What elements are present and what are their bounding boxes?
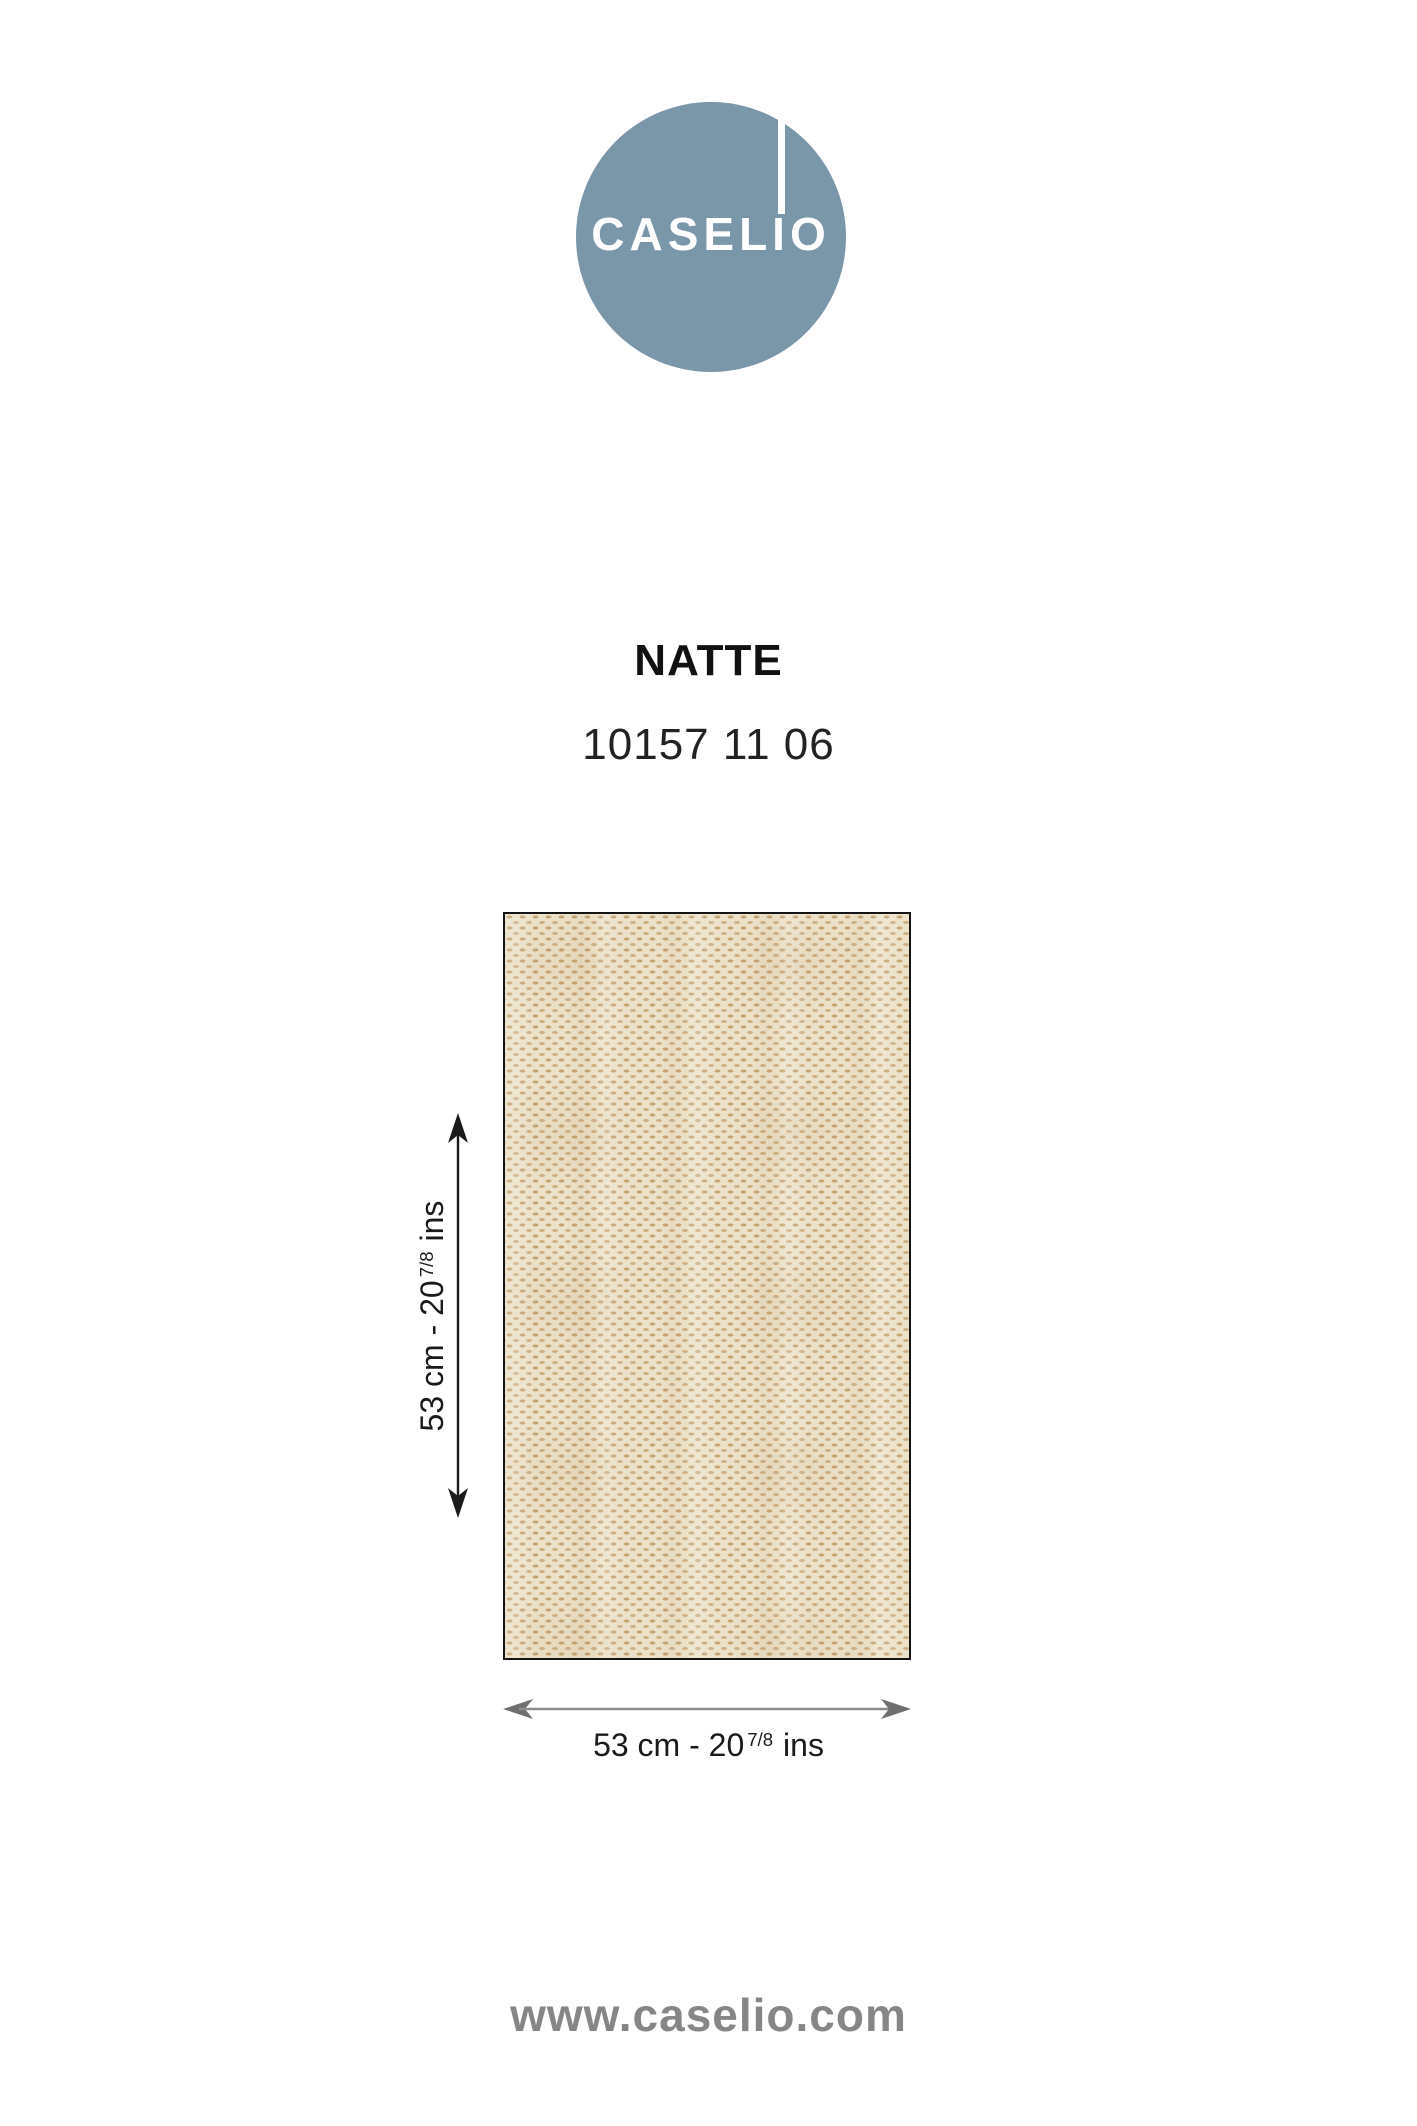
product-spec-sheet: CASELIO NATTE 10157 11 06 53 cm - 207/8i… xyxy=(0,0,1417,2126)
caselio-logo: CASELIO xyxy=(576,102,846,372)
wallpaper-swatch xyxy=(503,912,911,1660)
logo-letter-i: I xyxy=(772,211,790,257)
height-fraction: 7/8 xyxy=(416,1251,437,1277)
height-dimension-label: 53 cm - 207/8ins xyxy=(410,1114,444,1518)
width-unit: ins xyxy=(783,1727,824,1763)
logo-text-left: CASEL xyxy=(591,211,772,257)
product-name: NATTE xyxy=(0,639,1417,683)
website-url: www.caselio.com xyxy=(0,1992,1417,2038)
height-value: 53 cm - 20 xyxy=(414,1280,450,1431)
width-dimension-arrow xyxy=(503,1696,911,1722)
height-unit: ins xyxy=(414,1201,450,1242)
logo-letter-i-glyph: I xyxy=(772,208,790,260)
width-value: 53 cm - 20 xyxy=(593,1727,744,1763)
width-fraction: 7/8 xyxy=(747,1729,773,1750)
logo-wordmark: CASELIO xyxy=(576,211,846,257)
product-reference: 10157 11 06 xyxy=(0,723,1417,767)
logo-i-accent-bar xyxy=(778,102,785,214)
logo-text-right: O xyxy=(790,211,831,257)
width-dimension-label: 53 cm - 207/8ins xyxy=(0,1729,1417,1761)
